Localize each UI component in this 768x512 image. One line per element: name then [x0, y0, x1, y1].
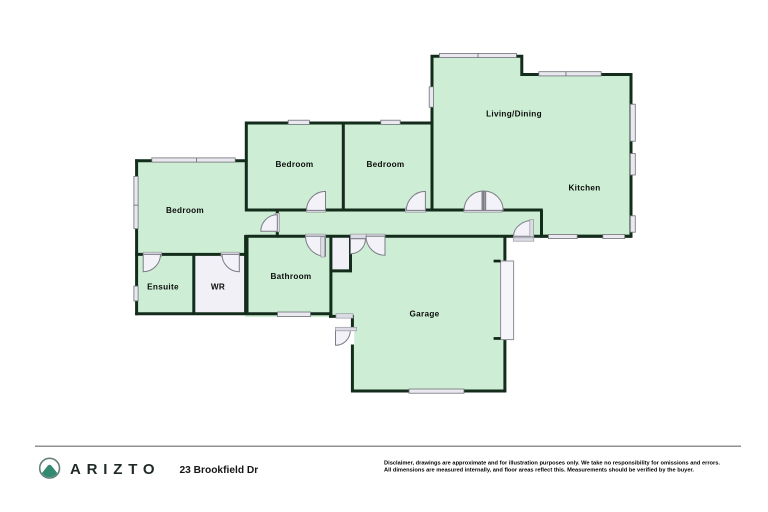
svg-text:Bedroom: Bedroom [366, 160, 404, 169]
svg-text:Bedroom: Bedroom [275, 160, 313, 169]
svg-text:ARIZTO: ARIZTO [70, 461, 160, 478]
svg-text:Disclaimer, drawings are appro: Disclaimer, drawings are approximate and… [384, 461, 720, 467]
svg-text:Bedroom: Bedroom [166, 206, 204, 215]
svg-text:Kitchen: Kitchen [568, 184, 600, 193]
svg-text:WR: WR [211, 283, 225, 292]
svg-text:All dimensions are measured in: All dimensions are measured internally, … [384, 468, 694, 474]
svg-text:Living/Dining: Living/Dining [486, 110, 542, 119]
svg-text:23 Brookfield Dr: 23 Brookfield Dr [180, 465, 259, 476]
svg-text:Bathroom: Bathroom [270, 272, 311, 281]
svg-text:Garage: Garage [409, 310, 439, 319]
svg-text:Ensuite: Ensuite [147, 283, 179, 292]
